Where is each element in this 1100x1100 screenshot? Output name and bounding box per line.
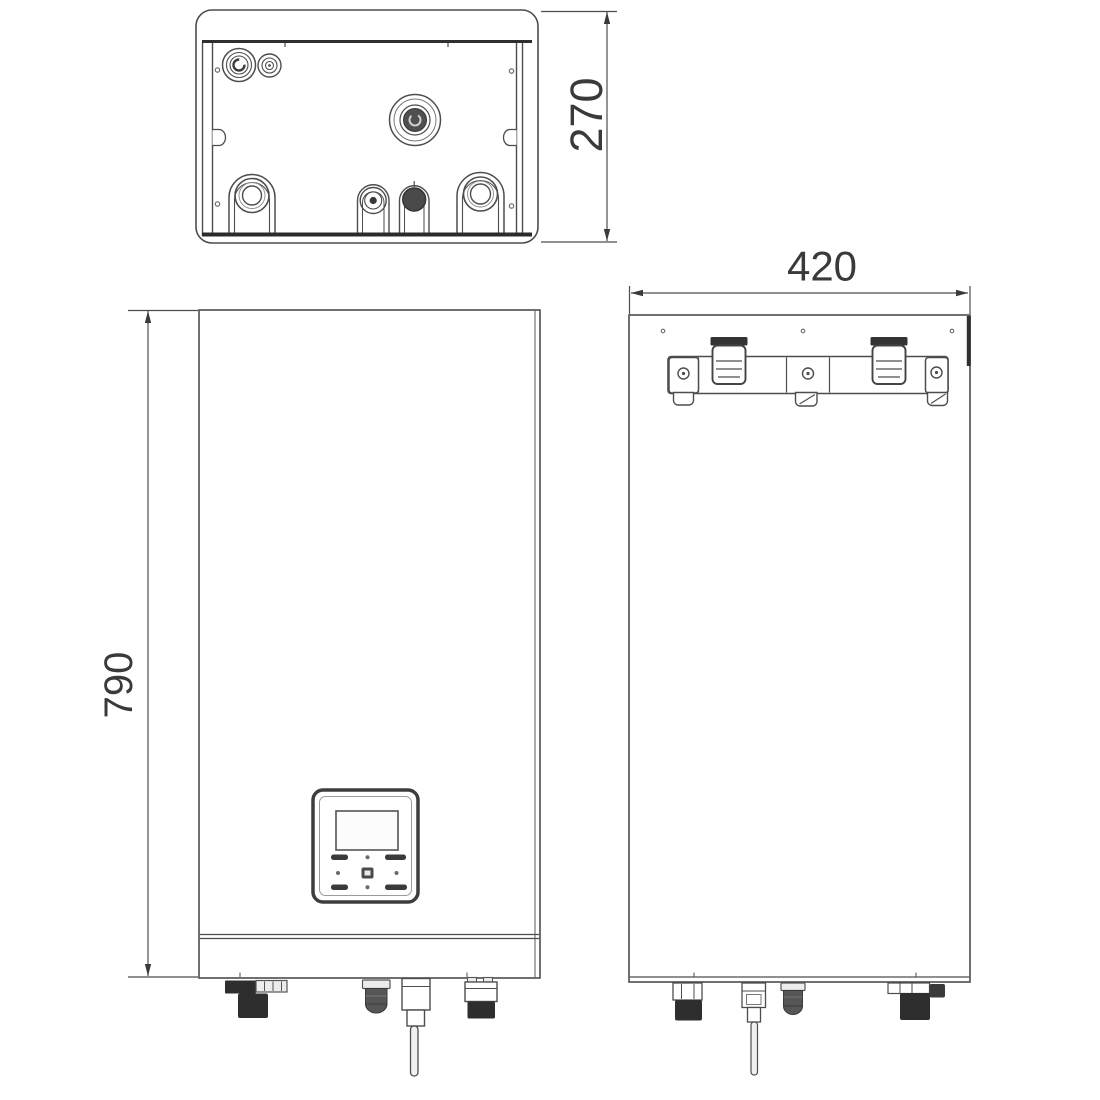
top-pipe-fitting-right <box>457 173 504 234</box>
right-wall-notch <box>504 130 517 146</box>
back-view <box>629 315 970 1075</box>
arrowhead-down-icon <box>145 964 151 976</box>
front-view <box>199 310 540 1076</box>
arrowhead-right-icon <box>956 290 968 296</box>
bracket-plate-right <box>926 358 949 394</box>
drain-tube <box>411 1026 419 1076</box>
back-connector-left <box>673 983 702 1021</box>
front-connector-right <box>465 978 497 1019</box>
bracket-hook-right <box>871 337 908 384</box>
left-wall-notch <box>213 130 226 146</box>
dimension-width-420 <box>630 286 971 314</box>
panel-button[interactable] <box>385 885 407 891</box>
drawing-page: 270 <box>0 0 1100 1100</box>
bracket-tab-left <box>674 393 694 406</box>
panel-button[interactable] <box>331 855 348 861</box>
panel-button[interactable] <box>331 885 348 891</box>
panel-led <box>366 855 370 859</box>
top-pipe-fitting-mid-small <box>358 185 390 233</box>
top-view <box>196 10 538 243</box>
dimension-height-label: 790 <box>97 652 141 719</box>
bracket-hook-left <box>711 337 748 384</box>
drain-tube <box>751 1022 758 1075</box>
bracket-plate-left <box>669 358 699 394</box>
dimension-depth-label: 270 <box>561 77 612 152</box>
arrowhead-left-icon <box>631 290 643 296</box>
panel-led <box>336 871 340 875</box>
arrowhead-up-icon <box>604 12 610 24</box>
panel-button[interactable] <box>385 855 406 861</box>
back-view-casing <box>629 315 970 982</box>
panel-led <box>366 885 370 889</box>
front-connector-left <box>225 981 287 1019</box>
back-connector-right <box>888 983 945 1020</box>
arrowhead-up-icon <box>145 311 151 323</box>
dimension-height-790 <box>128 311 198 978</box>
dimension-width-label: 420 <box>787 243 857 290</box>
control-panel <box>313 790 418 902</box>
panel-led <box>395 871 399 875</box>
back-connector-drain-pipe <box>742 983 766 1075</box>
top-pipe-fitting-left <box>229 175 275 233</box>
control-panel-display <box>336 811 398 850</box>
front-connector-valve <box>363 980 391 1013</box>
front-connector-drain-pipe <box>402 979 430 1077</box>
back-connector-valve <box>781 983 805 1015</box>
arrowhead-down-icon <box>604 229 610 241</box>
drawing-canvas: 270 <box>0 0 1100 1100</box>
